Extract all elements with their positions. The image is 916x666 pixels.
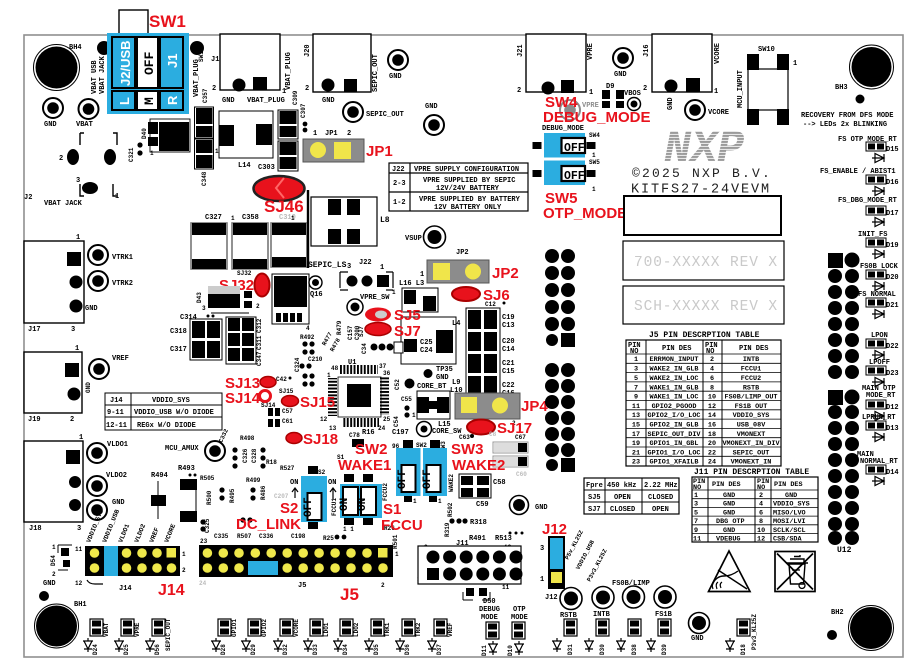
svg-text:R492: R492 (300, 334, 315, 341)
svg-text:2: 2 (381, 582, 385, 589)
svg-text:C58: C58 (493, 479, 506, 487)
svg-text:3: 3 (694, 501, 698, 509)
svg-text:GPIO2_IN_GLB: GPIO2_IN_GLB (650, 422, 699, 430)
svg-text:D39: D39 (661, 644, 668, 655)
svg-text:SJ14: SJ14 (261, 402, 276, 409)
svg-text:D11: D11 (481, 645, 488, 656)
svg-text:VDDIO_SYS: VDDIO_SYS (733, 412, 770, 420)
svg-text:VBAT: VBAT (76, 121, 93, 129)
svg-text:D38: D38 (631, 644, 638, 655)
svg-text:R494: R494 (151, 472, 168, 480)
svg-text:VMONEXT_IN: VMONEXT_IN (731, 459, 772, 467)
svg-text:12: 12 (757, 536, 765, 544)
svg-text:GPIO1_IN_GBL: GPIO1_IN_GBL (650, 440, 699, 448)
svg-text:MODE: MODE (511, 614, 528, 622)
svg-text:GND: GND (667, 97, 675, 110)
svg-text:J22: J22 (392, 166, 405, 174)
svg-text:D32: D32 (282, 644, 289, 655)
svg-text:FS0B/LIMP_OUT: FS0B/LIMP_OUT (724, 394, 777, 402)
svg-text:BH3: BH3 (835, 84, 848, 92)
svg-text:J14: J14 (110, 397, 123, 405)
svg-text:VBAT USB: VBAT USB (91, 60, 99, 94)
svg-text:GND: GND (436, 374, 449, 382)
svg-text:C311: C311 (256, 335, 263, 350)
svg-text:VTRK1: VTRK1 (112, 254, 133, 262)
svg-text:SCLK/SCL: SCLK/SCL (773, 527, 806, 535)
svg-text:VPRE SUPPLIED BY SEPIC: VPRE SUPPLIED BY SEPIC (423, 177, 515, 185)
svg-text:D17: D17 (886, 210, 899, 218)
svg-text:C336: C336 (259, 533, 274, 540)
svg-text:GND: GND (44, 121, 57, 129)
svg-text:3: 3 (634, 366, 638, 374)
svg-text:C78: C78 (349, 432, 360, 439)
svg-text:C326: C326 (242, 448, 249, 463)
svg-text:D21: D21 (886, 302, 899, 310)
svg-text:INTB: INTB (593, 611, 611, 619)
svg-text:R527: R527 (280, 465, 295, 472)
svg-text:OTP_MODE: OTP_MODE (543, 205, 627, 222)
svg-text:TRK2: TRK2 (415, 622, 422, 637)
svg-text:ON: ON (339, 498, 351, 511)
svg-text:VTRK2: VTRK2 (112, 280, 133, 288)
svg-text:S2: S2 (280, 500, 298, 517)
svg-text:J14: J14 (158, 582, 185, 599)
svg-text:D30: D30 (599, 644, 606, 655)
svg-text:VPRE_SW: VPRE_SW (360, 294, 390, 302)
svg-text:VSUP: VSUP (405, 235, 422, 243)
svg-text:S1: S1 (337, 454, 345, 461)
svg-text:CORE_SW: CORE_SW (432, 428, 462, 436)
svg-text:1: 1 (76, 234, 80, 242)
svg-text:VBAT JACK: VBAT JACK (99, 55, 107, 94)
svg-text:P3v3_KL25Z: P3v3_KL25Z (751, 614, 758, 650)
svg-text:R479: R479 (336, 320, 343, 335)
svg-text:SW5: SW5 (589, 159, 600, 166)
svg-text:OPEN: OPEN (652, 506, 669, 514)
svg-text:1: 1 (540, 576, 544, 584)
svg-text:VBAT_PLUG: VBAT_PLUG (193, 59, 201, 97)
svg-text:D19: D19 (886, 242, 899, 250)
svg-text:37: 37 (379, 363, 387, 370)
svg-text:C324: C324 (294, 357, 301, 372)
svg-text:22: 22 (708, 449, 716, 457)
svg-text:2: 2 (256, 303, 260, 310)
svg-text:MCU_INPUT: MCU_INPUT (737, 70, 745, 108)
svg-text:GPIO1_XFAILB: GPIO1_XFAILB (650, 459, 699, 467)
svg-text:2: 2 (643, 85, 647, 93)
svg-text:J19: J19 (28, 416, 41, 424)
svg-text:D43: D43 (196, 292, 203, 303)
svg-text:J16: J16 (643, 44, 651, 57)
svg-text:C300: C300 (354, 325, 361, 340)
svg-text:3: 3 (540, 545, 544, 553)
svg-text:2: 2 (182, 567, 186, 574)
svg-text:D29: D29 (250, 644, 257, 655)
svg-text:1: 1 (413, 498, 417, 505)
svg-text:1: 1 (115, 193, 119, 201)
svg-text:1: 1 (380, 264, 384, 272)
svg-text:GND: GND (43, 580, 56, 588)
svg-text:1: 1 (150, 150, 154, 157)
svg-text:INTB: INTB (743, 356, 759, 364)
svg-text:1: 1 (714, 88, 718, 96)
svg-text:24: 24 (708, 459, 716, 467)
svg-text:FCCU1: FCCU1 (741, 366, 761, 374)
svg-text:Q16: Q16 (310, 291, 323, 299)
svg-text:17: 17 (632, 431, 640, 439)
svg-text:6: 6 (759, 509, 763, 517)
svg-text:1: 1 (215, 148, 219, 155)
svg-text:MISO/LVO: MISO/LVO (773, 509, 806, 517)
svg-text:R507: R507 (237, 533, 252, 540)
svg-text:CLOSED: CLOSED (648, 494, 673, 502)
svg-text:C55: C55 (401, 396, 412, 403)
svg-text:1: 1 (589, 89, 593, 97)
svg-text:23: 23 (200, 538, 208, 545)
svg-text:SJ15: SJ15 (300, 394, 335, 411)
svg-text:3: 3 (77, 525, 81, 533)
svg-text:2: 2 (212, 85, 216, 93)
svg-text:VPRE: VPRE (587, 43, 595, 60)
svg-text:SEPIC_LS: SEPIC_LS (308, 261, 347, 270)
svg-text:PIN DES: PIN DES (774, 481, 803, 489)
svg-text:WAKE2: WAKE2 (452, 457, 505, 474)
svg-text:GND: GND (785, 492, 797, 500)
svg-text:8: 8 (710, 384, 714, 392)
svg-text:PIN DES: PIN DES (662, 345, 691, 353)
svg-text:2.22 MHz: 2.22 MHz (644, 482, 678, 490)
svg-text:FCCU2: FCCU2 (382, 483, 389, 501)
svg-text:R16: R16 (362, 429, 375, 437)
svg-text:VDDIO_USB W/O DIODE: VDDIO_USB W/O DIODE (134, 409, 214, 417)
svg-text:OFF: OFF (422, 469, 434, 489)
svg-text:D40: D40 (141, 128, 148, 139)
svg-text:C12: C12 (485, 301, 496, 308)
svg-text:LDO1: LDO1 (323, 622, 330, 637)
svg-text:J12: J12 (545, 594, 558, 602)
svg-text:BH1: BH1 (74, 601, 87, 609)
svg-text:12V/24V BATTERY: 12V/24V BATTERY (436, 185, 500, 193)
svg-text:WAKE1: WAKE1 (338, 457, 391, 474)
svg-text:SJ7: SJ7 (588, 506, 601, 514)
svg-text:C309: C309 (292, 90, 299, 105)
svg-text:D56: D56 (154, 644, 161, 655)
svg-text:21: 21 (632, 449, 640, 457)
svg-text:ON: ON (328, 479, 336, 487)
svg-text:M: M (142, 97, 157, 105)
svg-text:GND: GND (222, 97, 235, 105)
svg-text:DEBUG: DEBUG (479, 606, 500, 614)
svg-text:20: 20 (708, 440, 716, 448)
svg-text:SEPIC_OUT: SEPIC_OUT (366, 111, 404, 119)
svg-text:450 kHz: 450 kHz (607, 482, 636, 490)
svg-text:J5 PIN DESCRPTION TABLE: J5 PIN DESCRPTION TABLE (649, 331, 760, 340)
svg-text:C348: C348 (201, 171, 208, 186)
svg-text:VMONEXT: VMONEXT (737, 431, 766, 439)
svg-text:5: 5 (694, 509, 698, 517)
svg-text:1: 1 (52, 544, 56, 551)
svg-text:ON: ON (357, 498, 369, 511)
svg-text:1: 1 (75, 345, 79, 353)
svg-text:D22: D22 (886, 343, 899, 351)
svg-text:2: 2 (52, 571, 56, 578)
svg-text:L: L (117, 97, 132, 105)
svg-text:SW4: SW4 (589, 132, 600, 139)
svg-text:SW1: SW1 (149, 12, 186, 31)
svg-text:NO: NO (757, 484, 765, 492)
svg-text:C57: C57 (282, 408, 293, 415)
svg-text:S2: S2 (318, 469, 326, 476)
svg-text:13: 13 (632, 412, 640, 420)
svg-text:L16 L3: L16 L3 (399, 280, 424, 288)
svg-text:VBOS: VBOS (624, 90, 641, 98)
svg-text:L14: L14 (238, 162, 251, 170)
svg-text:C198: C198 (291, 533, 306, 540)
svg-text:R318: R318 (470, 519, 487, 527)
svg-text:D35: D35 (373, 644, 380, 655)
svg-text:3: 3 (347, 263, 351, 271)
svg-text:J1: J1 (165, 54, 180, 68)
svg-text:GND: GND (425, 103, 438, 111)
svg-text:MOSI/LVI: MOSI/LVI (773, 518, 806, 526)
svg-text:J21: J21 (517, 44, 525, 57)
svg-text:R491: R491 (469, 535, 486, 543)
svg-text:CLOSED: CLOSED (610, 506, 635, 514)
svg-text:VBAT JACK: VBAT JACK (44, 200, 83, 208)
svg-text:1: 1 (395, 551, 399, 558)
svg-text:GND: GND (723, 527, 735, 535)
svg-text:3: 3 (71, 326, 75, 334)
svg-text:1: 1 (182, 551, 186, 558)
svg-text:GND: GND (112, 499, 125, 507)
svg-text:700-XXXXX REV X: 700-XXXXX REV X (634, 255, 778, 271)
svg-text:D36: D36 (404, 644, 411, 655)
svg-text:C63: C63 (459, 434, 470, 441)
svg-text:J2/USB: J2/USB (118, 40, 133, 86)
svg-text:25: 25 (383, 416, 391, 423)
svg-text:L4: L4 (452, 320, 460, 328)
svg-text:GND: GND (85, 382, 92, 393)
svg-text:C197: C197 (392, 429, 409, 437)
svg-text:C24: C24 (420, 347, 433, 355)
svg-text:18: 18 (708, 431, 716, 439)
svg-text:MODE: MODE (481, 614, 498, 622)
svg-text:GPIO2_PGOOD: GPIO2_PGOOD (652, 403, 697, 411)
svg-text:BH2: BH2 (831, 609, 844, 617)
svg-text:JP1: JP1 (325, 130, 338, 138)
svg-text:GND: GND (535, 504, 548, 512)
svg-text:2-3: 2-3 (393, 180, 406, 188)
svg-text:D14: D14 (886, 469, 899, 477)
svg-text:9: 9 (694, 527, 698, 535)
svg-text:MODE_RT: MODE_RT (866, 392, 895, 400)
svg-text:SEPIC_OUT: SEPIC_OUT (372, 54, 380, 92)
svg-text:SEPIC_OUT: SEPIC_OUT (165, 618, 172, 651)
svg-text:VBAT: VBAT (103, 622, 110, 637)
svg-text:SCH-XXXXX REV X: SCH-XXXXX REV X (634, 299, 778, 315)
svg-text:D12: D12 (886, 404, 899, 412)
svg-text:D33: D33 (312, 644, 319, 655)
svg-text:VREF: VREF (112, 355, 129, 363)
svg-text:R501: R501 (392, 534, 399, 549)
svg-text:12: 12 (320, 416, 328, 423)
svg-text:23: 23 (632, 459, 640, 467)
svg-text:FS1B OUT: FS1B OUT (735, 403, 768, 411)
svg-text:--> LEDs 2x BLINKING: --> LEDs 2x BLINKING (803, 121, 887, 129)
svg-text:VLDO2: VLDO2 (106, 472, 127, 480)
svg-text:WAKE1_IN_GLB: WAKE1_IN_GLB (650, 384, 699, 392)
svg-text:7: 7 (634, 384, 638, 392)
svg-text:2: 2 (759, 492, 763, 500)
svg-text:SJ7: SJ7 (394, 323, 421, 340)
svg-text:R: R (165, 95, 180, 105)
svg-text:D18: D18 (740, 644, 747, 655)
svg-text:12V BATTERY ONLY: 12V BATTERY ONLY (434, 204, 502, 212)
svg-text:D31: D31 (567, 644, 574, 655)
svg-text:VDDIO_SYS: VDDIO_SYS (152, 397, 190, 405)
svg-text:C210: C210 (308, 356, 323, 363)
svg-text:VBAT_PLUG: VBAT_PLUG (285, 52, 293, 90)
svg-text:D37: D37 (436, 644, 443, 655)
svg-text:1: 1 (327, 372, 331, 379)
svg-text:C157: C157 (347, 325, 354, 340)
svg-text:C312: C312 (256, 318, 263, 333)
svg-text:J5: J5 (298, 582, 306, 590)
svg-text:1: 1 (592, 186, 596, 193)
svg-text:7: 7 (694, 518, 698, 526)
svg-text:SW10: SW10 (758, 46, 775, 54)
svg-text:VDDIO_SYS: VDDIO_SYS (773, 501, 810, 509)
svg-text:SW2: SW2 (416, 442, 427, 449)
svg-text:R25: R25 (323, 535, 334, 542)
svg-text:D28: D28 (220, 644, 227, 655)
svg-text:JP1: JP1 (366, 143, 393, 160)
svg-text:C42: C42 (276, 376, 287, 383)
svg-text:1-2: 1-2 (393, 199, 406, 207)
svg-text:OPEN: OPEN (614, 494, 631, 502)
svg-text:GND: GND (389, 73, 402, 81)
svg-text:19: 19 (632, 440, 640, 448)
svg-text:24: 24 (199, 580, 207, 587)
svg-text:36: 36 (383, 370, 391, 377)
svg-text:D16: D16 (886, 179, 899, 187)
svg-text:C14: C14 (502, 346, 515, 354)
svg-text:D9: D9 (606, 83, 614, 91)
svg-text:DEBUG_MODE: DEBUG_MODE (543, 109, 651, 126)
svg-text:16: 16 (708, 422, 716, 430)
svg-text:48: 48 (331, 365, 339, 372)
svg-text:©2025 NXP B.V.: ©2025 NXP B.V. (632, 166, 772, 181)
svg-text:D20: D20 (886, 274, 899, 282)
svg-text:WAKE1_IN_LOC: WAKE1_IN_LOC (650, 394, 699, 402)
svg-text:NO: NO (630, 348, 638, 356)
svg-text:GND: GND (614, 71, 627, 79)
svg-text:3: 3 (76, 177, 80, 185)
svg-text:WAKE2_IN_GLB: WAKE2_IN_GLB (650, 366, 699, 374)
svg-text:C307: C307 (300, 103, 307, 118)
svg-text:DC_LINK: DC_LINK (236, 516, 301, 533)
svg-text:CORE_BT: CORE_BT (417, 383, 446, 391)
svg-text:11: 11 (632, 403, 640, 411)
svg-text:SJ32: SJ32 (237, 270, 252, 277)
svg-text:GPIO1: GPIO1 (231, 619, 238, 637)
svg-text:1: 1 (634, 356, 638, 364)
svg-text:4: 4 (306, 325, 310, 332)
svg-text:1: 1 (79, 434, 83, 442)
svg-text:C52: C52 (394, 379, 401, 390)
svg-text:FCCU2: FCCU2 (741, 375, 761, 383)
svg-text:12: 12 (708, 403, 716, 411)
svg-text:JP2: JP2 (492, 265, 519, 282)
svg-text:D23: D23 (886, 370, 899, 378)
svg-text:CSB/SDA: CSB/SDA (773, 536, 802, 544)
svg-text:BH4: BH4 (69, 44, 82, 52)
svg-text:C21: C21 (502, 360, 515, 368)
svg-text:C357: C357 (202, 88, 209, 103)
svg-text:R499: R499 (246, 477, 261, 484)
svg-text:DBG OTP: DBG OTP (716, 518, 745, 526)
svg-text:C34: C34 (361, 343, 368, 354)
svg-text:C19: C19 (502, 314, 515, 322)
svg-text:VPRE SUPPLIED BY BATTERY: VPRE SUPPLIED BY BATTERY (419, 196, 521, 204)
svg-text:D10: D10 (507, 645, 514, 656)
svg-text:1: 1 (694, 492, 698, 500)
svg-text:SJ18: SJ18 (303, 431, 338, 448)
svg-text:RECOVERY FROM DFS MODE: RECOVERY FROM DFS MODE (801, 112, 893, 120)
svg-text:5: 5 (634, 375, 638, 383)
svg-text:1: 1 (592, 152, 596, 159)
svg-text:J1: J1 (211, 56, 219, 64)
svg-text:10: 10 (708, 394, 716, 402)
svg-text:1: 1 (438, 498, 442, 505)
svg-text:D25: D25 (123, 644, 130, 655)
svg-text:TRK1: TRK1 (384, 622, 391, 637)
svg-text:2: 2 (517, 87, 521, 95)
svg-text:J5: J5 (340, 585, 359, 604)
svg-text:12-11: 12-11 (106, 422, 127, 430)
svg-text:2: 2 (347, 130, 351, 138)
svg-text:10: 10 (757, 527, 765, 535)
svg-text:VLDO1: VLDO1 (107, 441, 128, 449)
svg-text:ERRMON_INPUT: ERRMON_INPUT (650, 356, 699, 364)
svg-text:3: 3 (202, 305, 206, 312)
svg-text:R18: R18 (266, 459, 277, 466)
svg-text:4: 4 (759, 501, 763, 509)
svg-text:J17: J17 (28, 326, 41, 334)
svg-text:C303: C303 (258, 164, 275, 172)
svg-text:TP35: TP35 (436, 366, 453, 374)
svg-text:2: 2 (59, 155, 63, 163)
svg-text:FCCU1: FCCU1 (331, 498, 338, 516)
svg-text:D50: D50 (483, 598, 496, 606)
svg-text:VMONEXT_IN_DIV: VMONEXT_IN_DIV (722, 440, 780, 448)
svg-text:1: 1 (420, 271, 424, 279)
svg-text:9-11: 9-11 (107, 409, 124, 417)
svg-text:C347: C347 (256, 351, 263, 366)
svg-text:C317: C317 (170, 346, 187, 354)
svg-text:J22: J22 (359, 259, 372, 267)
svg-text:8: 8 (759, 518, 763, 526)
svg-text:1: 1 (231, 215, 235, 222)
svg-text:R498: R498 (240, 435, 255, 442)
svg-text:SW2: SW2 (355, 441, 388, 458)
svg-text:C25: C25 (420, 339, 433, 347)
svg-text:USB_08V: USB_08V (737, 422, 766, 430)
svg-text:11: 11 (75, 546, 83, 553)
svg-text:D24: D24 (92, 644, 99, 655)
svg-text:J18: J18 (29, 525, 42, 533)
svg-text:C20: C20 (502, 338, 515, 346)
